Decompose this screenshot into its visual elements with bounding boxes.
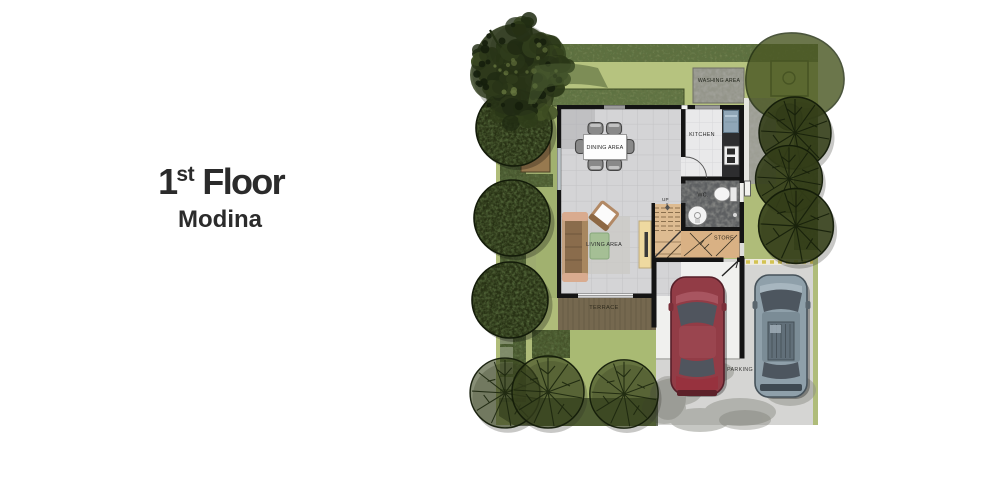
svg-text:PARKING: PARKING [727,367,753,373]
svg-text:TERRACE: TERRACE [589,305,619,311]
svg-text:LIVING AREA: LIVING AREA [586,242,622,248]
svg-text:WASHING AREA: WASHING AREA [698,78,741,84]
svg-text:KITCHEN: KITCHEN [689,132,715,138]
svg-text:UP: UP [662,197,669,202]
svg-text:DINING AREA: DINING AREA [587,145,624,151]
svg-text:STORE: STORE [714,236,734,242]
svg-text:WC.: WC. [698,193,709,199]
